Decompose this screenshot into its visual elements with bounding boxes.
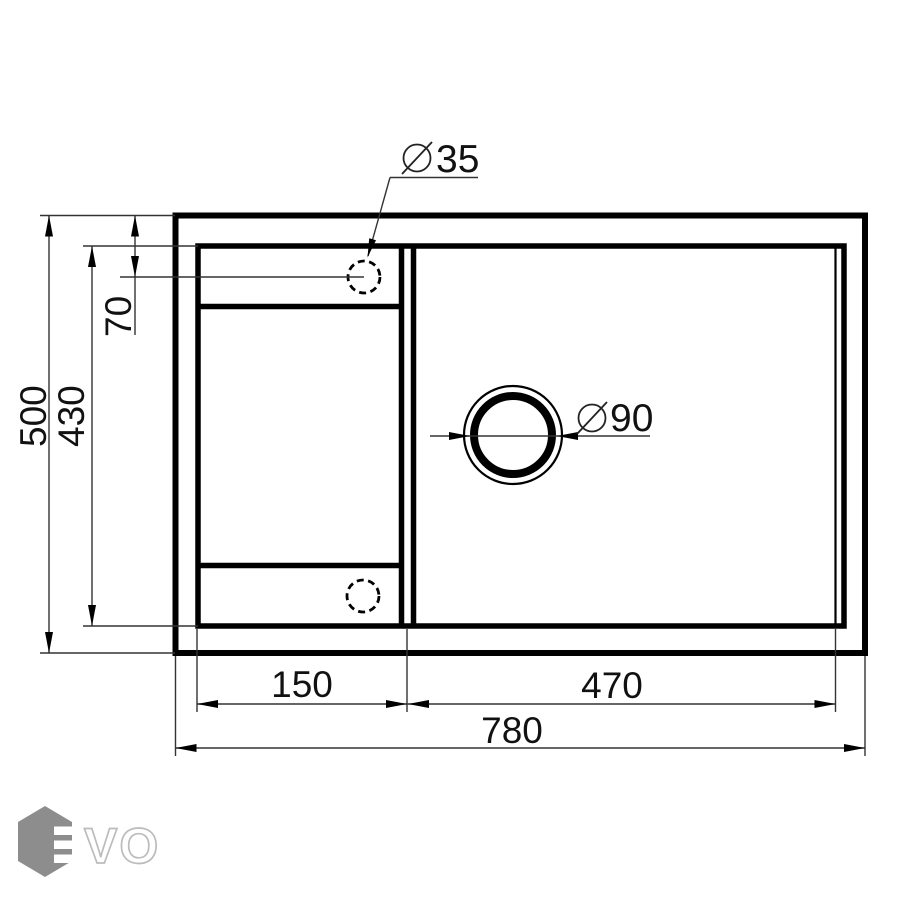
- arrow-430-top: [88, 246, 96, 267]
- diameter-symbol: [402, 142, 432, 174]
- dim-drain-diameter-label: 90: [610, 397, 653, 440]
- arrow-70-top: [131, 216, 139, 237]
- logo-vo-text: VO: [84, 818, 160, 874]
- arrow-500-bottom: [45, 632, 53, 653]
- dimension-arrows: [45, 216, 865, 753]
- sink-technical-drawing: 500 430 70 150 470 780 35 90 VO: [0, 0, 900, 900]
- dim-70-label: 70: [98, 296, 139, 337]
- arrow-470-right: [815, 700, 836, 708]
- tap-hole-bottom-circle: [347, 580, 379, 612]
- arrow-430-bottom: [88, 605, 96, 626]
- diameter-symbols: [402, 142, 607, 434]
- arrow-150-right: [386, 700, 407, 708]
- drain-outer-circle: [464, 386, 562, 484]
- logo-e-bar-top: [54, 827, 82, 836]
- arrow-470-left: [408, 700, 429, 708]
- dimension-lines: [40, 178, 865, 757]
- arrow-drain-left: [449, 432, 470, 440]
- dim-150-label: 150: [271, 664, 333, 705]
- dim-500-label: 500: [13, 385, 54, 447]
- arrow-drain-right: [557, 432, 578, 440]
- dimension-labels: 500 430 70 150 470 780 35 90: [13, 138, 653, 751]
- dim-780-label: 780: [481, 710, 543, 751]
- drain-inner-circle: [474, 396, 552, 474]
- diameter-symbol-slash-90: [577, 402, 607, 434]
- diameter-symbol: [577, 402, 607, 434]
- arrow-150-left: [197, 700, 218, 708]
- dim-470-label: 470: [581, 665, 643, 706]
- diameter-symbol-slash-35: [402, 142, 432, 174]
- drawing-canvas: 500 430 70 150 470 780 35 90 VO: [0, 0, 900, 900]
- sink-structure: [176, 216, 866, 654]
- arrow-500-top: [45, 216, 53, 237]
- arrow-70-bottom: [131, 256, 139, 277]
- arrow-780-left: [176, 744, 197, 752]
- dim-430-label: 430: [51, 385, 92, 447]
- evo-logo: VO: [18, 806, 160, 877]
- logo-e-bar-bottom: [54, 855, 82, 864]
- sink-outer-rim: [176, 216, 866, 654]
- dim-tap-diameter-label: 35: [436, 138, 479, 181]
- arrow-780-right: [844, 744, 865, 752]
- logo-e-bar-middle: [54, 841, 82, 850]
